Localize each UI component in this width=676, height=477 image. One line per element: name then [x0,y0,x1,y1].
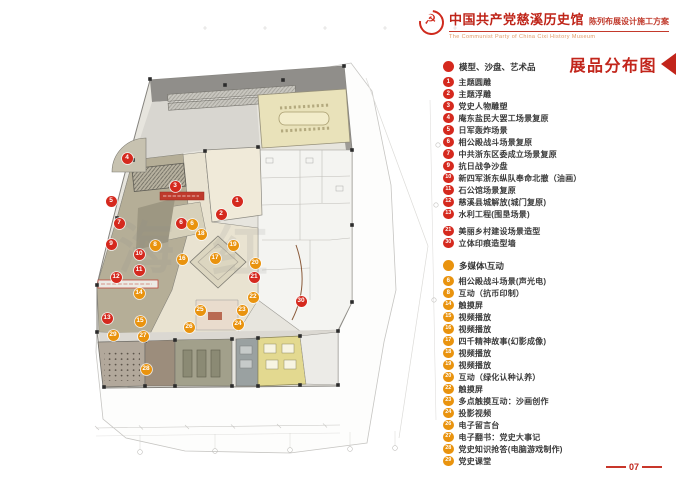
legend-item: 19视频播放 [443,359,676,371]
panel-title-text: 展品分布图 [569,52,657,76]
legend-item-label: 视频播放 [459,312,492,323]
item-number-badge: 1 [443,77,454,88]
legend-item: 17四千精神故事(幻影成像) [443,335,676,347]
legend-item: 6相公殿战斗场景(声光电) [443,275,676,287]
item-number-badge: 8 [443,288,454,299]
legend-item-label: 日军轰炸场景 [459,125,508,136]
legend-item: 1主题圆雕 [443,76,676,88]
legend-section-label: 多媒体\互动 [459,260,504,272]
legend-item-label: 中共浙东区委成立场景复原 [459,149,557,160]
legend-item: 4庵东盐民大罢工场景复原 [443,112,676,124]
item-number-badge: 11 [443,185,454,196]
legend-item-label: 触摸屏 [459,300,484,311]
legend-item-label: 四千精神故事(幻影成像) [459,336,547,347]
legend-item-label: 水利工程(围垦场景) [459,209,530,220]
item-number-badge: 6 [443,276,454,287]
legend-item: 22触摸屏 [443,383,676,395]
item-number-badge: 12 [443,197,454,208]
legend-item-label: 主题浮雕 [459,89,492,100]
legend-item: 10新四军浙东纵队奉命北撤（油画） [443,172,676,184]
reading-room [175,339,232,386]
item-number-badge: 28 [443,444,454,455]
auditorium [98,341,145,387]
item-number-badge: 26 [443,420,454,431]
watermark-text: 海 [118,217,174,280]
page-number-dash [606,466,626,468]
legend-item: 15视频播放 [443,311,676,323]
item-number-badge: 9 [443,161,454,172]
legend-item: 6相公殿战斗场景复原 [443,136,676,148]
legend-item-label: 多点触摸互动：沙画创作 [459,396,549,407]
conference-room [258,89,350,148]
legend-item: 21美丽乡村建设场景造型 [443,225,676,237]
legend-item-label: 党史人物雕塑 [459,101,508,112]
header: ☭ 中国共产党慈溪历史馆 陈列布展设计施工方案 The Communist Pa… [418,9,668,40]
legend-item: 3党史人物雕塑 [443,100,676,112]
legend-item: 27电子翻书：党史大事记 [443,431,676,443]
legend-item: 9抗日战争沙盘 [443,160,676,172]
legend-item-label: 互动（抗币印制） [459,288,525,299]
item-number-badge: 3 [443,101,454,112]
item-number-badge: 20 [443,372,454,383]
legend-item-label: 抗日战争沙盘 [459,161,508,172]
museum-title-english: The Communist Party of China Cixi Histor… [449,34,669,40]
item-number-badge: 7 [443,149,454,160]
watermark-text: 红 [212,221,268,284]
legend-item-label: 党史课堂 [459,456,492,467]
legend-item: 14触摸屏 [443,299,676,311]
page-number: 07 [606,462,662,472]
legend-item: 24投影视频 [443,407,676,419]
item-number-badge: 30 [443,238,454,249]
legend-item: 18视频播放 [443,347,676,359]
hall-theme-sculpture [205,147,262,222]
legend-item-label: 相公殿战斗场景(声光电) [459,276,547,287]
legend-item-label: 视频播放 [459,348,492,359]
service-block [258,150,352,331]
office-room-2 [258,336,306,386]
legend-item: 12慈溪县城解放(城门复原) [443,196,676,208]
item-number-badge: 2 [443,89,454,100]
legend-item-label: 美丽乡村建设场景造型 [459,226,541,237]
legend-section-label: 模型、沙盘、艺术品 [459,61,536,73]
page-number-value: 07 [629,462,639,472]
party-emblem-icon: ☭ [418,9,445,36]
item-number-badge: 10 [443,173,454,184]
legend-item-label: 电子翻书：党史大事记 [459,432,541,443]
legend-item-label: 庵东盐民大罢工场景复原 [459,113,549,124]
item-number-badge: 15 [443,312,454,323]
item-number-badge: 27 [443,432,454,443]
item-number-badge: 13 [443,209,454,220]
item-number-badge: 23 [443,396,454,407]
legend-item: 13水利工程(围垦场景) [443,208,676,220]
page-number-dash [642,466,662,468]
item-number-badge: 4 [443,113,454,124]
storage-room [145,340,175,386]
legend-item: 8互动（抗币印制） [443,287,676,299]
legend-item-label: 电子留言台 [459,420,500,431]
item-number-badge: 21 [443,226,454,237]
section-dot-icon [443,260,454,271]
legend-item-label: 视频播放 [459,324,492,335]
legend-item-label: 立体印痕造型墙 [459,238,516,249]
item-number-badge: 16 [443,324,454,335]
curved-corner-room [112,138,146,172]
item-number-badge: 6 [443,137,454,148]
arrow-left-icon [661,53,676,75]
section-dot-icon [443,61,454,72]
legend-item-label: 相公殿战斗场景复原 [459,137,533,148]
legend-item: 11石公馆场景复原 [443,184,676,196]
legend-item: 2主题浮雕 [443,88,676,100]
legend-item: 26电子留言台 [443,419,676,431]
legend-item-label: 投影视频 [459,408,492,419]
item-number-badge: 19 [443,360,454,371]
document-subtitle: 陈列布展设计施工方案 [589,16,669,27]
legend-item: 16视频播放 [443,323,676,335]
sand-painting-room [196,300,238,330]
legend-item-label: 石公馆场景复原 [459,185,516,196]
museum-title: 中国共产党慈溪历史馆 [449,9,584,28]
item-number-badge: 24 [443,408,454,419]
item-number-badge: 17 [443,336,454,347]
panel-title: 展品分布图 [569,52,676,76]
page: 海 红 123456791011121321306814151617181920… [0,0,676,477]
item-number-badge: 18 [443,348,454,359]
legend-item-label: 新四军浙东纵队奉命北撤（油画） [459,173,582,184]
legend-item-label: 触摸屏 [459,384,484,395]
legend-item: 28党史知识抢答(电脑游戏制作) [443,443,676,455]
legend-item-label: 慈溪县城解放(城门复原) [459,197,547,208]
legend-item-label: 主题圆雕 [459,77,492,88]
legend-item: 30立体印痕造型墙 [443,237,676,249]
legend-section-multimedia: 多媒体\互动6相公殿战斗场景(声光电)8互动（抗币印制）14触摸屏15视频播放1… [443,259,676,467]
legend-item-label: 视频播放 [459,360,492,371]
right-corridor [300,332,338,385]
item-number-badge: 14 [443,300,454,311]
legend-section-models: 模型、沙盘、艺术品1主题圆雕2主题浮雕3党史人物雕塑4庵东盐民大罢工场景复原5日… [443,60,676,249]
legend-item: 5日军轰炸场景 [443,124,676,136]
office-room-1 [236,338,258,386]
legend-panel: 展品分布图 模型、沙盘、艺术品1主题圆雕2主题浮雕3党史人物雕塑4庵东盐民大罢工… [443,60,676,467]
legend-item: 23多点触摸互动：沙画创作 [443,395,676,407]
item-number-badge: 29 [443,456,454,467]
legend-item-label: 互动（绿化认种认养） [459,372,541,383]
legend-item: 20互动（绿化认种认养） [443,371,676,383]
item-number-badge: 22 [443,384,454,395]
legend-item-label: 党史知识抢答(电脑游戏制作) [459,444,563,455]
item-number-badge: 5 [443,125,454,136]
legend-sections: 模型、沙盘、艺术品1主题圆雕2主题浮雕3党史人物雕塑4庵东盐民大罢工场景复原5日… [443,60,676,467]
legend-item: 7中共浙东区委成立场景复原 [443,148,676,160]
legend-section-header: 多媒体\互动 [443,259,676,272]
